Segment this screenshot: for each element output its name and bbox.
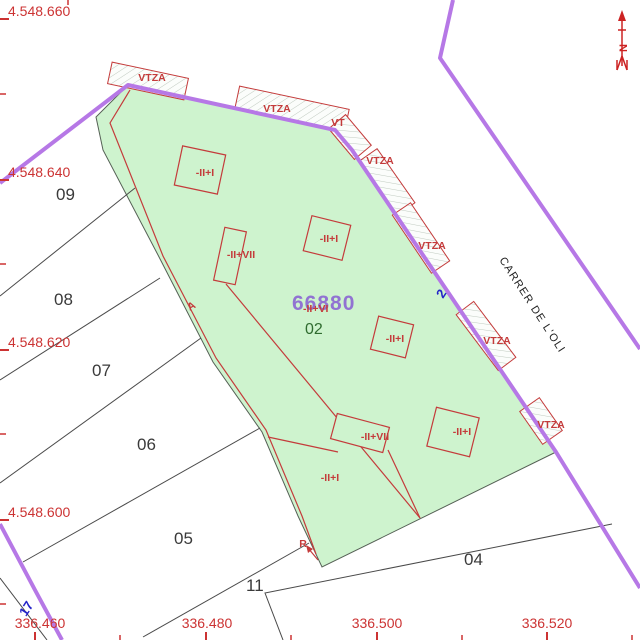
north-arrow: N xyxy=(617,10,630,70)
y-axis-label: 4.548.640 xyxy=(8,164,70,180)
porch-label: VTZA xyxy=(418,240,446,252)
parcel-divider-09-08 xyxy=(0,188,135,296)
porch-label: VTZA xyxy=(138,72,166,84)
parcel-divider-08-07 xyxy=(0,278,160,380)
neighbor-parcel-08: 08 xyxy=(54,290,73,309)
porch-label: VTZA xyxy=(366,155,394,167)
porch-label: VTZA xyxy=(483,335,511,347)
porch-label: VTZA xyxy=(263,103,291,115)
floor-label: -II+VII xyxy=(227,249,255,261)
neighbor-parcel-06: 06 xyxy=(137,435,156,454)
porch-label: VTZA xyxy=(537,419,565,431)
floor-label: -II+I xyxy=(196,167,214,179)
floor-label: -II+I xyxy=(320,233,338,245)
cadastral-map-canvas[interactable]: 4.548.660 4.548.640 4.548.620 4.548.600 … xyxy=(0,0,640,640)
boundary-line-street-right xyxy=(440,0,640,349)
y-axis-label: 4.548.620 xyxy=(8,334,70,350)
neighbor-parcel-07: 07 xyxy=(92,361,111,380)
neighbor-parcel-09: 09 xyxy=(56,185,75,204)
neighbor-parcel-11: 11 xyxy=(246,576,264,595)
x-axis-label: 336.520 xyxy=(522,615,573,631)
parcel-divider-07-06 xyxy=(0,338,201,483)
north-label: N xyxy=(618,44,630,52)
floor-label: -II+I xyxy=(453,426,471,438)
x-axis-label: 336.460 xyxy=(15,615,66,631)
neighbor-parcel-05: 05 xyxy=(174,529,193,548)
y-axis-label: 4.548.600 xyxy=(8,504,70,520)
floor-label-center: -II+VI xyxy=(303,303,328,315)
floor-label: -II+VII xyxy=(361,431,389,443)
x-axis-label: 336.500 xyxy=(352,615,403,631)
x-axis-label: 336.480 xyxy=(182,615,233,631)
porch-label: VT xyxy=(331,117,345,129)
floor-label: -II+I xyxy=(386,333,404,345)
cadastral-map-viewport[interactable]: 4.548.660 4.548.640 4.548.620 4.548.600 … xyxy=(0,0,640,640)
y-axis-label: 4.548.660 xyxy=(8,3,70,19)
floor-label: -II+I xyxy=(321,472,339,484)
subparcel-letter-r: R xyxy=(299,538,307,550)
north-arrow-head xyxy=(618,10,626,21)
subparcel-code-label: 02 xyxy=(305,321,323,338)
neighbor-parcel-04: 04 xyxy=(464,550,483,569)
